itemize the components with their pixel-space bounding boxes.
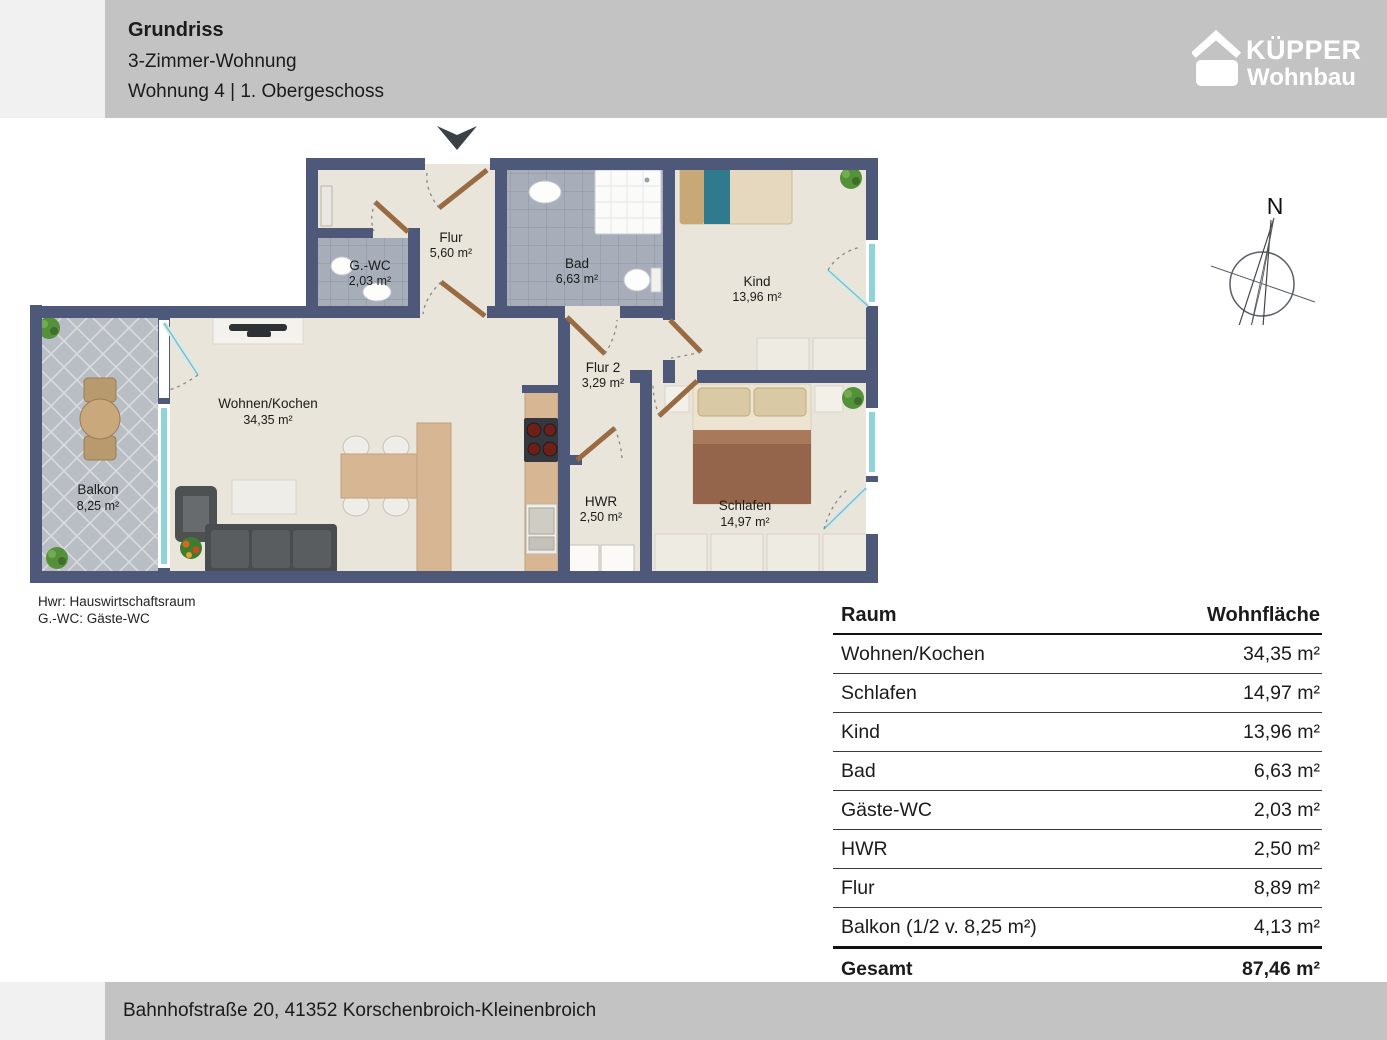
area-schlafen: 14,97 m²: [720, 515, 769, 529]
row-area: 14,97 m²: [1243, 682, 1320, 705]
bedroom-wardrobe: [655, 534, 867, 572]
table-row: Gäste-WC 2,03 m²: [833, 791, 1322, 830]
table-row: Flur 8,89 m²: [833, 869, 1322, 908]
row-room: HWR: [841, 838, 888, 861]
row-room: Kind: [841, 721, 880, 744]
area-wohnen: 34,35 m²: [243, 413, 292, 427]
table-row: HWR 2,50 m²: [833, 830, 1322, 869]
row-room: Schlafen: [841, 682, 917, 705]
area-kind: 13,96 m²: [732, 290, 781, 304]
logo-sub: Wohnbau: [1247, 64, 1356, 90]
row-area: 2,03 m²: [1254, 799, 1320, 822]
bedroom-window: [866, 408, 878, 476]
kuepper-wohnbau-logo: KÜPPER Wohnbau: [1192, 30, 1372, 90]
kind-bed: [680, 166, 792, 224]
legend-line-gwc: G.-WC: Gäste-WC: [38, 610, 196, 627]
floorplan-page: Grundriss 3-Zimmer-Wohnung Wohnung 4 | 1…: [0, 0, 1387, 1040]
total-value: 87,46 m²: [1242, 958, 1320, 981]
bath-sink: [529, 181, 561, 203]
label-flur: Flur: [439, 230, 463, 245]
total-label: Gesamt: [841, 958, 913, 981]
logo-name: KÜPPER: [1246, 35, 1362, 65]
balcony-furniture: [80, 378, 120, 460]
page-subtitle: 3-Zimmer-Wohnung: [128, 52, 384, 71]
flower-plant: [180, 537, 202, 559]
label-kind: Kind: [743, 274, 770, 289]
compass-rose: N: [1205, 190, 1325, 325]
row-room: Bad: [841, 760, 876, 783]
area-hwr: 2,50 m²: [580, 510, 622, 524]
double-bed: [693, 384, 811, 504]
floor-plan: Flur 5,60 m² G.-WC 2,03 m² Bad 6,63 m² K…: [25, 120, 885, 595]
kind-window: [866, 240, 878, 306]
label-bad: Bad: [565, 256, 589, 271]
col-header-area: Wohnfläche: [1207, 604, 1320, 627]
area-flur2: 3,29 m²: [582, 376, 624, 390]
footer-band: Bahnhofstraße 20, 41352 Korschenbroich-K…: [0, 982, 1387, 1040]
row-room: Flur: [841, 877, 875, 900]
label-flur2: Flur 2: [586, 360, 621, 375]
row-area: 34,35 m²: [1243, 643, 1320, 666]
table-header-row: Raum Wohnfläche: [833, 597, 1322, 635]
label-gwc: G.-WC: [349, 258, 390, 273]
row-room: Gäste-WC: [841, 799, 932, 822]
legend-line-hwr: Hwr: Hauswirtschaftsraum: [38, 593, 196, 610]
row-room: Balkon (1/2 v. 8,25 m²): [841, 916, 1037, 939]
row-area: 13,96 m²: [1243, 721, 1320, 744]
bedroom-door-opening: [866, 482, 878, 534]
header-text-block: Grundriss 3-Zimmer-Wohnung Wohnung 4 | 1…: [128, 20, 384, 112]
label-hwr: HWR: [585, 494, 617, 509]
coffee-table: [232, 480, 296, 514]
row-area: 2,50 m²: [1254, 838, 1320, 861]
header-band: Grundriss 3-Zimmer-Wohnung Wohnung 4 | 1…: [0, 0, 1387, 118]
shower: [595, 170, 661, 234]
bath-toilet: [624, 268, 661, 292]
row-room: Wohnen/Kochen: [841, 643, 985, 666]
area-flur: 5,60 m²: [430, 246, 472, 260]
nightstand-right: [815, 386, 843, 412]
table-row: Balkon (1/2 v. 8,25 m²) 4,13 m²: [833, 908, 1322, 948]
area-gwc: 2,03 m²: [349, 274, 391, 288]
legend: Hwr: Hauswirtschaftsraum G.-WC: Gäste-WC: [38, 593, 196, 627]
entrance-arrow-icon: [437, 126, 477, 150]
page-title: Grundriss: [128, 20, 384, 40]
area-table: Raum Wohnfläche Wohnen/Kochen 34,35 m² S…: [833, 597, 1322, 989]
sideboard-tv: [213, 318, 303, 344]
area-bad: 6,63 m²: [556, 272, 598, 286]
area-balkon: 8,25 m²: [77, 499, 119, 513]
label-schlafen: Schlafen: [719, 498, 772, 513]
row-area: 8,89 m²: [1254, 877, 1320, 900]
compass-north-label: N: [1267, 193, 1284, 219]
table-row: Schlafen 14,97 m²: [833, 674, 1322, 713]
table-row: Wohnen/Kochen 34,35 m²: [833, 635, 1322, 674]
kitchen-counter: [524, 391, 558, 577]
table-row: Bad 6,63 m²: [833, 752, 1322, 791]
address-line: Bahnhofstraße 20, 41352 Korschenbroich-K…: [123, 982, 596, 1040]
col-header-room: Raum: [841, 604, 897, 627]
row-area: 6,63 m²: [1254, 760, 1320, 783]
table-row: Kind 13,96 m²: [833, 713, 1322, 752]
kitchen-island: [417, 423, 451, 575]
label-wohnen: Wohnen/Kochen: [218, 396, 318, 411]
living-window: [158, 404, 170, 568]
label-balkon: Balkon: [77, 482, 118, 497]
sofa: [205, 524, 337, 574]
compass-needle: [1249, 218, 1274, 325]
unit-line: Wohnung 4 | 1. Obergeschoss: [128, 82, 384, 101]
house-icon: [1194, 36, 1238, 86]
hall-wardrobe: [321, 186, 332, 226]
row-area: 4,13 m²: [1254, 916, 1320, 939]
